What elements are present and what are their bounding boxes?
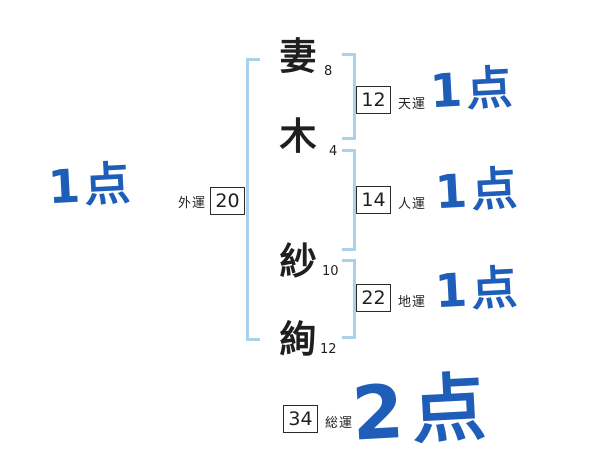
score-total-luck: 2点 (350, 370, 495, 451)
person-luck-bracket (342, 149, 356, 251)
name-char-3: 紗 (274, 243, 322, 280)
earth-luck-value-box: 22 (356, 284, 391, 312)
outer-luck-bracket (246, 58, 260, 341)
heaven-luck-value: 12 (361, 89, 385, 111)
score-earth-luck: 1点 (434, 264, 522, 314)
stroke-count-1: 8 (324, 64, 332, 79)
earth-luck-label: 地運 (398, 291, 426, 310)
name-char-4: 絢 (274, 321, 322, 358)
stroke-count-3: 10 (322, 264, 339, 279)
person-luck-value-box: 14 (356, 186, 391, 214)
total-luck-value-box: 34 (283, 405, 318, 433)
heaven-luck-bracket (342, 53, 356, 140)
name-char-1: 妻 (274, 38, 322, 75)
person-luck-value: 14 (361, 189, 385, 211)
total-luck-label: 総運 (325, 412, 353, 431)
name-char-2: 木 (274, 118, 322, 155)
stroke-count-2: 4 (329, 144, 337, 159)
stroke-count-4: 12 (320, 342, 337, 357)
total-luck-value: 34 (288, 408, 312, 430)
score-person-luck: 1点 (434, 165, 522, 215)
outer-luck-value-box: 20 (210, 187, 245, 215)
score-heaven-luck: 1点 (429, 64, 517, 114)
outer-luck-label: 外運 (178, 192, 206, 211)
heaven-luck-label: 天運 (398, 93, 426, 112)
earth-luck-value: 22 (361, 287, 385, 309)
score-outer-luck: 1点 (47, 160, 135, 210)
earth-luck-bracket (342, 259, 356, 339)
person-luck-label: 人運 (398, 193, 426, 212)
heaven-luck-value-box: 12 (356, 86, 391, 114)
outer-luck-value: 20 (215, 190, 239, 212)
name-fortune-chart: 1点 外運 20 妻 8 木 4 紗 10 絢 12 12 天運 1点 14 人… (0, 0, 600, 470)
